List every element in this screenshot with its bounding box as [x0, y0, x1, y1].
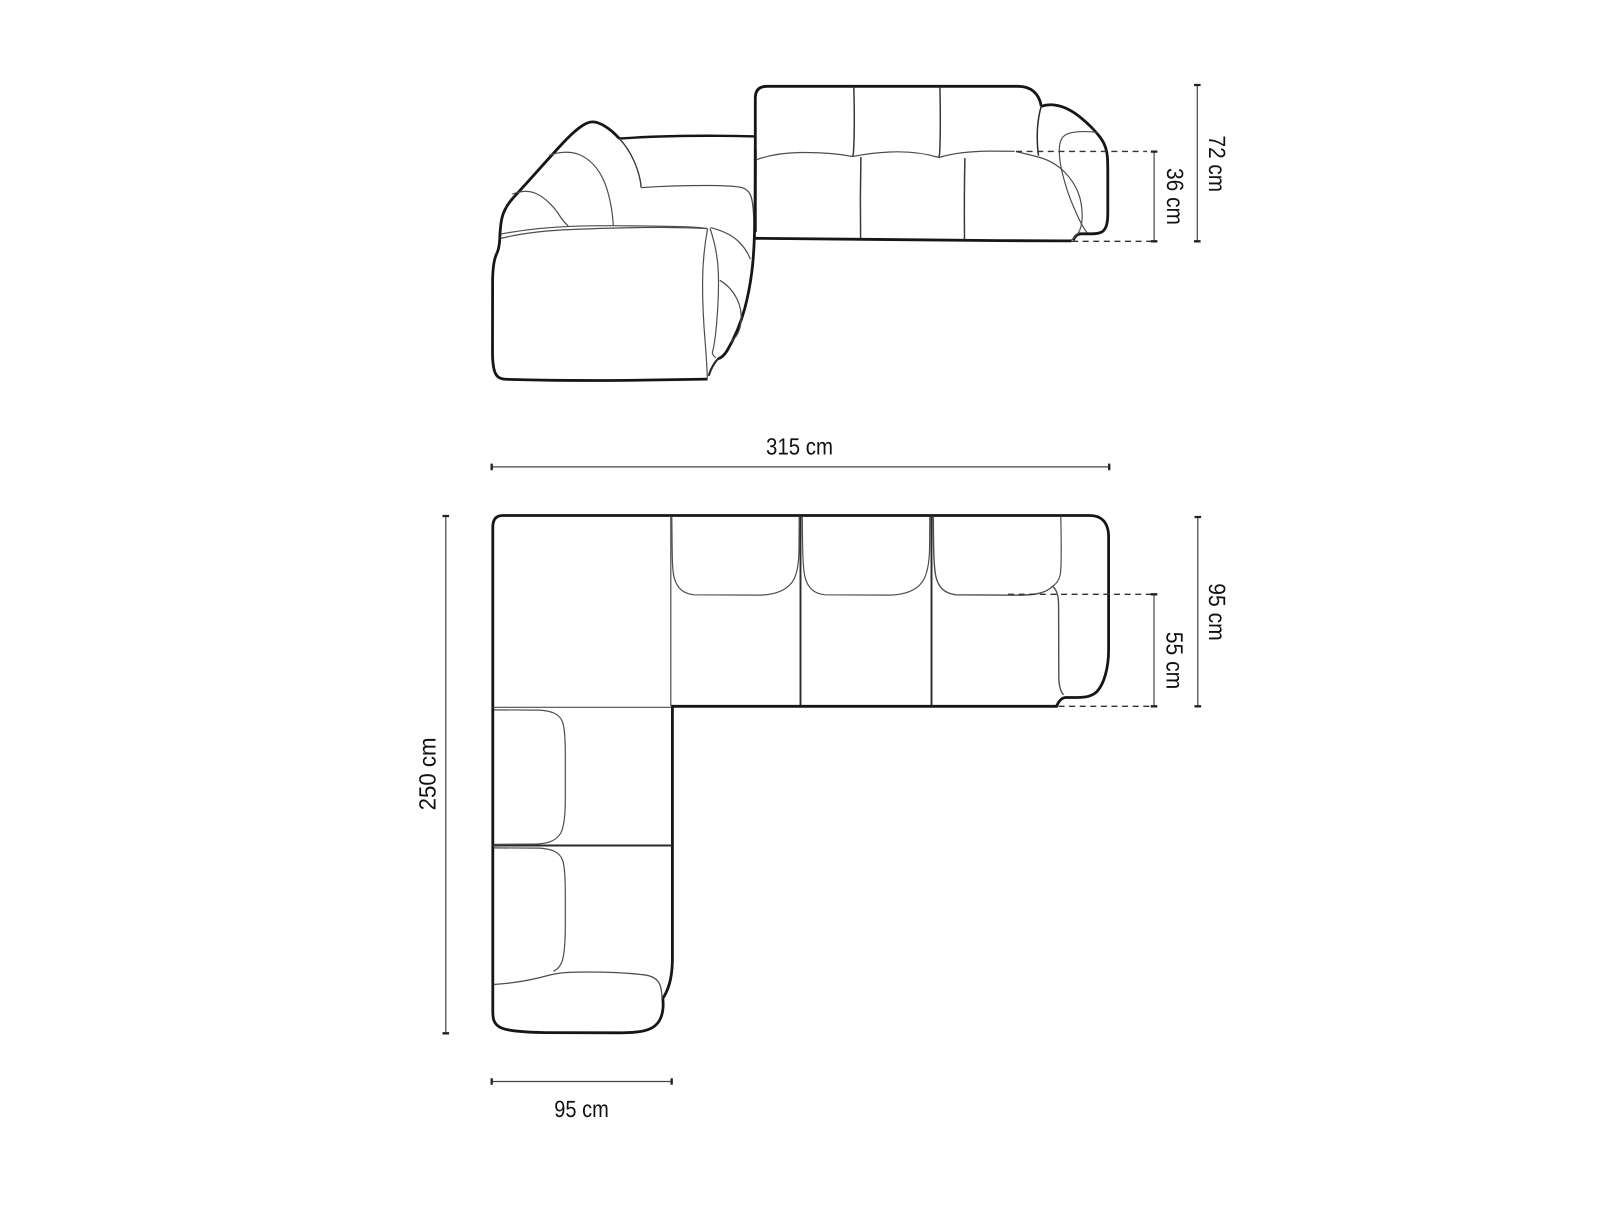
- svg-text:315 cm: 315 cm: [766, 434, 833, 460]
- svg-text:95 cm: 95 cm: [1204, 583, 1230, 641]
- svg-text:250 cm: 250 cm: [415, 737, 441, 810]
- svg-text:95 cm: 95 cm: [554, 1096, 609, 1122]
- svg-text:36 cm: 36 cm: [1162, 168, 1188, 225]
- svg-text:72 cm: 72 cm: [1204, 136, 1230, 193]
- svg-text:55 cm: 55 cm: [1162, 632, 1188, 690]
